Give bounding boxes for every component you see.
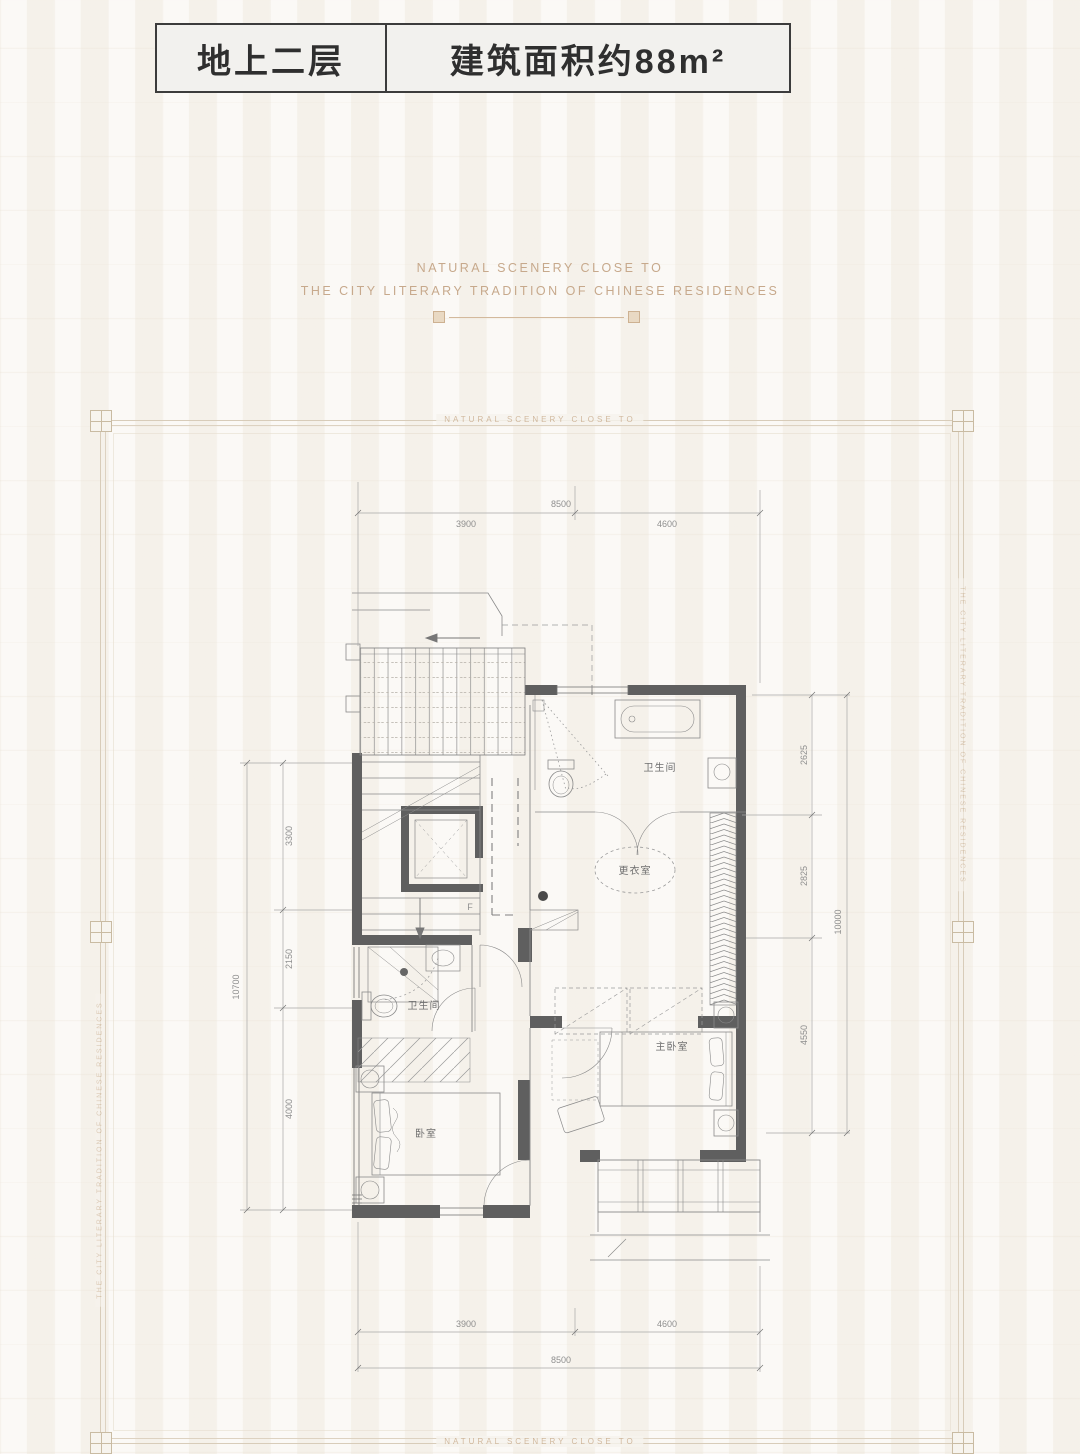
dim-right-total: 10000 bbox=[833, 909, 843, 934]
tagline-ornament bbox=[433, 311, 640, 323]
dim-left-seg1: 3300 bbox=[284, 826, 294, 846]
dim-left-seg3: 4000 bbox=[284, 1099, 294, 1119]
frame-top-text: NATURAL SCENERY CLOSE TO bbox=[436, 414, 643, 425]
title-bar: 地上二层 建筑面积约88m² bbox=[155, 23, 791, 93]
floorplan-page: 地上二层 建筑面积约88m² NATURAL SCENERY CLOSE TO … bbox=[0, 0, 1080, 1453]
stair-f-label: F bbox=[467, 902, 473, 912]
dimension-lines bbox=[240, 482, 850, 1372]
area-label: 建筑面积约88m² bbox=[387, 25, 789, 91]
room-label-dressing: 更衣室 bbox=[619, 864, 652, 877]
ornament-line bbox=[449, 317, 624, 318]
dim-top-seg2: 4600 bbox=[657, 519, 677, 529]
tagline-line1: NATURAL SCENERY CLOSE TO bbox=[0, 261, 1080, 275]
dim-left-seg2: 2150 bbox=[284, 949, 294, 969]
frame-corner-icon bbox=[90, 410, 112, 432]
frame-corner-icon bbox=[952, 410, 974, 432]
ornament-square-icon bbox=[433, 311, 445, 323]
frame-mid-icon bbox=[952, 921, 974, 943]
dim-bottom-seg2: 4600 bbox=[657, 1319, 677, 1329]
dim-bottom-total: 8500 bbox=[551, 1355, 571, 1365]
frame-right-text: THE CITY LITERARY TRADITION OF CHINESE R… bbox=[958, 578, 967, 891]
dim-bottom-seg1: 3900 bbox=[456, 1319, 476, 1329]
frame-mid-icon bbox=[90, 921, 112, 943]
dim-right-seg3: 4550 bbox=[799, 1025, 809, 1045]
tagline-line2: THE CITY LITERARY TRADITION OF CHINESE R… bbox=[0, 284, 1080, 298]
room-labels: 卫生间 更衣室 主卧室 卫生间 卧室 F bbox=[408, 761, 689, 1140]
wardrobe-hatch bbox=[710, 813, 736, 1005]
floor-plan-svg: 8500 3900 4600 3900 4600 8500 3300 2150 … bbox=[230, 460, 850, 1380]
ornament-square-icon bbox=[628, 311, 640, 323]
room-label-bath-main: 卫生间 bbox=[644, 761, 677, 774]
floor-label: 地上二层 bbox=[157, 25, 387, 91]
frame-corner-icon bbox=[90, 1432, 112, 1454]
frame-left-text: THE CITY LITERARY TRADITION OF CHINESE R… bbox=[96, 993, 105, 1306]
frame-bottom-text: NATURAL SCENERY CLOSE TO bbox=[436, 1436, 643, 1447]
dim-right-seg2: 2825 bbox=[799, 866, 809, 886]
dim-left-total: 10700 bbox=[231, 974, 241, 999]
dim-right-seg1: 2625 bbox=[799, 745, 809, 765]
room-label-master: 主卧室 bbox=[656, 1040, 689, 1053]
room-label-bath-second: 卫生间 bbox=[408, 999, 441, 1012]
dim-top-seg1: 3900 bbox=[456, 519, 476, 529]
walls bbox=[352, 685, 746, 1218]
dim-top-total: 8500 bbox=[551, 499, 571, 509]
room-label-bedroom: 卧室 bbox=[415, 1127, 437, 1140]
frame-corner-icon bbox=[952, 1432, 974, 1454]
